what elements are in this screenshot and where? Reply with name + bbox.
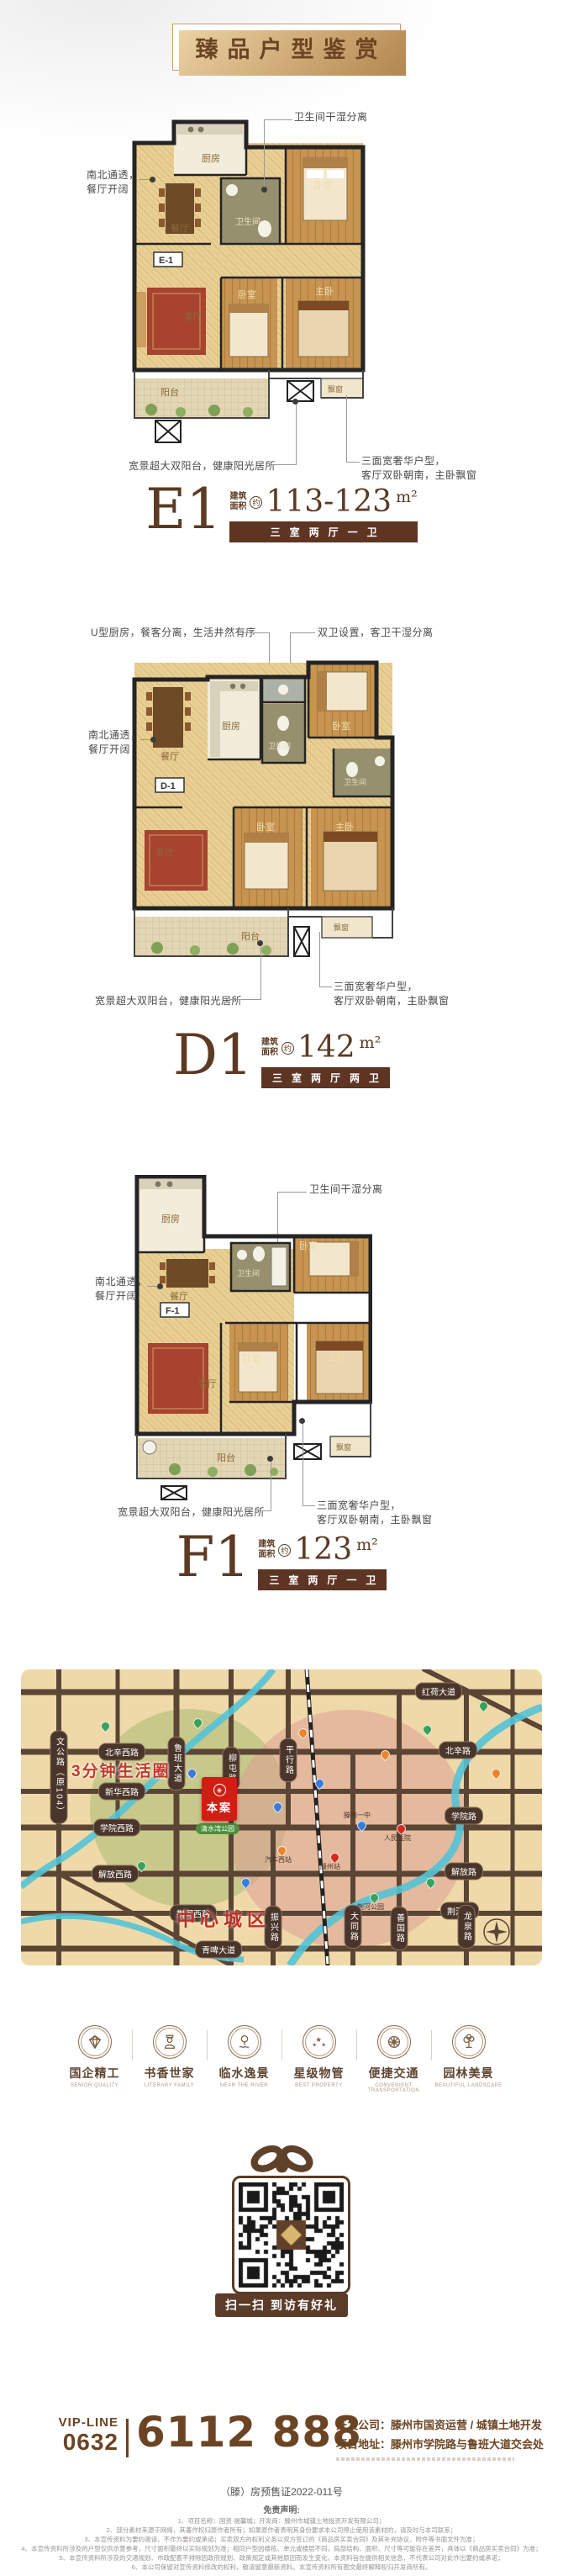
area-unit: m² bbox=[356, 1536, 378, 1554]
plan-letter-e1: E1 bbox=[145, 484, 221, 535]
feature-row: 国企精工 SENIOR QUALITY 书香世家 LITERARY FAMILY… bbox=[0, 2025, 563, 2093]
room-label-bedroom-mid: 卧室 bbox=[238, 288, 256, 300]
area-unit: m² bbox=[396, 488, 418, 506]
note-f1-bottom-right: 三面宽奢华户型， 客厅双卧朝南，主卧飘窗 bbox=[317, 1499, 433, 1527]
leader-line bbox=[271, 464, 297, 465]
room-label-living: 客厅 bbox=[198, 1378, 217, 1389]
center-zone-label: 中心城区 bbox=[176, 1905, 271, 1932]
room-label-balcony: 阳台 bbox=[217, 1452, 235, 1463]
note-e1-bottom-left: 宽景超大双阳台，健康阳光居所 bbox=[129, 459, 276, 473]
wheel-icon bbox=[377, 2025, 411, 2059]
leader-line bbox=[244, 632, 269, 633]
room-label-dining: 餐厅 bbox=[160, 750, 179, 762]
road-label: 解放西路 bbox=[92, 1865, 139, 1883]
room-label-bath-guest: 卫生间 bbox=[268, 741, 291, 750]
feature-sub: CONVENIENT TRANSPORTATION bbox=[357, 2083, 431, 2093]
park-label: 清水湾公园 bbox=[196, 1823, 239, 1834]
road-label: 新华西路 bbox=[98, 1783, 145, 1801]
vip-line-block: VIP-LINE 0632 bbox=[46, 2415, 118, 2455]
note-e1-bottom-right: 三面宽奢华户型， 客厅双卧朝南，主卧飘窗 bbox=[361, 454, 477, 483]
disclaimer-list: 1、项目名称：国资·晟馨城；开发商：滕州市城镇土地投资开发有限公司； 2、部分素… bbox=[0, 2516, 563, 2572]
leader-dot bbox=[150, 737, 156, 743]
room-label-kitchen: 厨房 bbox=[222, 721, 240, 732]
stars-icon: ★★★ bbox=[303, 2025, 336, 2059]
floorplan-e1: 厨房 卫生间 卧室 餐厅 客厅 卧室 主卧 阳台 飘窗 E-1 bbox=[130, 119, 366, 447]
compass-icon bbox=[484, 1919, 509, 1944]
poi-label: 滕州站 bbox=[320, 1862, 340, 1871]
feature-item: 园林美景 BEAUTIFUL LANDSCAPE bbox=[432, 2025, 506, 2088]
plan-code-d1: D-1 bbox=[160, 781, 176, 791]
feature-item: 临水逸景 NEAR THE RIVER bbox=[208, 2025, 281, 2088]
leader-line bbox=[265, 119, 292, 120]
room-label-kitchen: 厨房 bbox=[161, 1214, 180, 1225]
life-circle-label: 3分钟生活圈 bbox=[71, 1759, 171, 1781]
note-f1-bottom-left: 宽景超大双阳台，健康阳光居所 bbox=[118, 1505, 265, 1520]
feature-item: 国企精工 SENIOR QUALITY bbox=[58, 2025, 132, 2088]
location-map: 红荷大道 北辛西路 北辛路 新华西路 学院西路 学院路 解放西路 解放路 荆河西… bbox=[21, 1669, 542, 1965]
flyer-page: 臻品户型鉴赏 bbox=[0, 0, 563, 2576]
room-label-living: 客厅 bbox=[155, 846, 174, 858]
svg-text:★: ★ bbox=[312, 2043, 317, 2049]
plan-title-d1: D1 建筑 面积 约 142 m² 三室两厅两卫 bbox=[0, 1030, 563, 1088]
note-f1-left: 南北通透， 餐厅开阔 bbox=[95, 1275, 148, 1304]
qr-code-canvas bbox=[239, 2182, 344, 2288]
poi-label: 滕州一中 bbox=[344, 1811, 371, 1820]
title-banner: 臻品户型鉴赏 bbox=[172, 24, 401, 71]
project-marker-label: 本案 bbox=[207, 1799, 232, 1815]
plan-letter-d1: D1 bbox=[173, 1030, 253, 1081]
disclaimer-title: 免责声明: bbox=[0, 2503, 563, 2515]
waterside-tree-icon bbox=[228, 2025, 261, 2059]
room-label-dining: 餐厅 bbox=[171, 222, 189, 234]
approx-circle: 约 bbox=[250, 496, 262, 509]
qr-caption: 扫一扫 到访有好礼 bbox=[215, 2293, 348, 2317]
poi-label: 汽车西站 bbox=[265, 1855, 292, 1865]
area-label: 建筑 面积 bbox=[261, 1038, 278, 1058]
spec-bar-d1: 三室两厅两卫 bbox=[261, 1067, 390, 1088]
note-d1-top-left: U型厨房，餐客分离，生活井然有序 bbox=[91, 626, 256, 640]
road-label: 学院路 bbox=[445, 1807, 483, 1825]
note-d1-bottom-left: 宽景超大双阳台，健康阳光居所 bbox=[95, 994, 242, 1008]
plan-title-f1: F1 建筑 面积 约 123 m² 三室两厅一卫 bbox=[0, 1532, 563, 1590]
divider bbox=[126, 2419, 129, 2457]
feature-label: 书香世家 bbox=[133, 2065, 207, 2081]
leader-dot bbox=[267, 1456, 273, 1462]
feature-sub: BEAUTIFUL LANDSCAPE bbox=[432, 2083, 506, 2088]
room-label-dining: 餐厅 bbox=[170, 1290, 188, 1302]
area-value: 113-123 bbox=[266, 488, 392, 516]
developer-info: 开发公司：滕州市国资运营 / 城镇土地开发 项目地址：滕州市学院路与鲁班大道交会… bbox=[336, 2415, 544, 2454]
note-d1-left: 南北通透， 餐厅开阔 bbox=[88, 728, 141, 757]
feature-label: 便捷交通 bbox=[357, 2065, 431, 2081]
room-label-bath-master: 卫生间 bbox=[344, 777, 366, 786]
room-label-bedroom-mid: 卧室 bbox=[242, 1352, 260, 1364]
area-code: 0632 bbox=[46, 2430, 118, 2455]
road-label: 学院西路 bbox=[93, 1819, 140, 1837]
disclaimer-line: 5、本宣传资料所涉及的交通规划、市政配套不排除因政府规划、政策规定或其他原因而发… bbox=[0, 2553, 563, 2563]
gift-bow-icon bbox=[242, 2138, 322, 2177]
room-label-master: 主卧 bbox=[315, 286, 334, 297]
road-label: 青啤大道 bbox=[195, 1941, 242, 1959]
feature-label: 国企精工 bbox=[58, 2065, 132, 2081]
leader-line bbox=[264, 119, 265, 190]
project-emblem-icon: ◈ bbox=[213, 1784, 226, 1796]
road-label: 红荷大道 bbox=[415, 1683, 462, 1701]
leader-line bbox=[319, 986, 332, 987]
room-label-balcony: 阳台 bbox=[241, 930, 260, 942]
room-label-bath: 卫生间 bbox=[235, 216, 260, 227]
qr-code bbox=[232, 2176, 350, 2294]
note-e1-left: 南北通透， 餐厅开阔 bbox=[87, 168, 139, 197]
leader-line bbox=[260, 945, 261, 1000]
disclaimer-line: 6、本公司保留对宣传资料修改的权利，敬请留意最新资料。本宣传资料所有图文最终解释… bbox=[0, 2563, 563, 2572]
road-label: 解放路 bbox=[445, 1863, 483, 1880]
feature-item: ★★★ 星级物管 BEST PROPERTY bbox=[282, 2025, 356, 2088]
disclaimer-line: 2、部分素材来源于网络，其著作权归原作者所有；如果原作者表明其身份要求本公司停止… bbox=[0, 2526, 563, 2535]
approx-circle: 约 bbox=[278, 1544, 291, 1557]
area-value: 123 bbox=[294, 1536, 352, 1564]
leader-dot bbox=[257, 940, 263, 946]
disclaimer-line: 4、本宣传资料所涉及的户型仅供示意参考，尺寸面积最终以实际规划为准；相同户型因楼… bbox=[0, 2544, 563, 2553]
presale-permit: （滕）房预售证2022-011号 bbox=[0, 2484, 563, 2499]
leader-line bbox=[319, 932, 320, 987]
road-label: 龙泉路 bbox=[458, 1905, 476, 1949]
leader-line bbox=[229, 999, 260, 1000]
road-label: 文公路（原104） bbox=[50, 1731, 68, 1824]
vip-line-label: VIP-LINE bbox=[46, 2415, 118, 2430]
leader-line bbox=[346, 395, 347, 463]
area-unit: m² bbox=[360, 1034, 381, 1052]
area-label: 建筑 面积 bbox=[258, 1540, 275, 1560]
svg-text:★: ★ bbox=[321, 2043, 326, 2049]
room-label-bedroom-top: 卧室 bbox=[313, 179, 332, 191]
leader-line bbox=[346, 462, 360, 463]
leader-line bbox=[296, 404, 297, 465]
disclaimer-line: 1、项目名称：国资·晟馨城；开发商：滕州市城镇土地投资开发有限公司； bbox=[0, 2516, 563, 2526]
area-label: 建筑 面积 bbox=[229, 492, 246, 512]
room-label-master: 主卧 bbox=[335, 822, 354, 833]
plan-code-e1: E-1 bbox=[159, 256, 173, 266]
road-label: 北辛路 bbox=[439, 1742, 477, 1759]
room-label-balcony: 阳台 bbox=[160, 386, 179, 398]
room-label-living: 客厅 bbox=[184, 310, 203, 322]
plan-letter-f1: F1 bbox=[176, 1532, 250, 1583]
spec-bar-f1: 三室两厅一卫 bbox=[258, 1569, 387, 1590]
address-line: 项目地址：滕州市学院路与鲁班大道交会处 bbox=[336, 2435, 544, 2454]
room-label-bedroom-top: 卧室 bbox=[332, 720, 350, 732]
feature-sub: NEAR THE RIVER bbox=[208, 2083, 281, 2088]
room-label-bay: 飘窗 bbox=[328, 384, 343, 394]
feature-sub: BEST PROPERTY bbox=[282, 2083, 356, 2088]
leader-line bbox=[290, 632, 315, 633]
leader-line bbox=[139, 179, 150, 180]
note-e1-top-right: 卫生间干湿分离 bbox=[294, 110, 368, 124]
leader-dot bbox=[292, 399, 298, 405]
road-label: 平行路 bbox=[280, 1738, 297, 1782]
feature-sub: SENIOR QUALITY bbox=[58, 2083, 132, 2088]
room-label-kitchen: 厨房 bbox=[202, 153, 220, 164]
room-label-master: 主卧 bbox=[328, 1351, 346, 1362]
scholar-icon bbox=[153, 2025, 187, 2059]
note-d1-top-right: 双卫设置，客卫干湿分离 bbox=[318, 626, 434, 640]
room-label-bay: 飘窗 bbox=[334, 923, 349, 932]
leader-dot bbox=[157, 1283, 163, 1289]
floorplan-f1: 厨房 卫生间 卧室 餐厅 客厅 卧室 主卧 阳台 飘窗 F-1 bbox=[133, 1175, 372, 1503]
road-label: 善国路 bbox=[391, 1907, 408, 1950]
poi-label: 人民医院 bbox=[384, 1833, 411, 1843]
disclaimer-line: 3、本宣传资料为要约邀请，不作为要约或承诺；买卖双方的权利义务以双方签订的《商品… bbox=[0, 2535, 563, 2544]
leader-dot bbox=[261, 187, 267, 193]
leader-line bbox=[303, 1505, 315, 1506]
plan-code-f1: F-1 bbox=[166, 1306, 180, 1316]
room-label-bedroom-mid: 卧室 bbox=[256, 821, 275, 833]
note-d1-bottom-right: 三面宽奢华户型， 客厅双卧朝南，主卧飘窗 bbox=[334, 980, 450, 1008]
feature-label: 园林美景 bbox=[432, 2065, 506, 2081]
leader-dot bbox=[299, 1418, 305, 1424]
road-label: 大同路 bbox=[345, 1905, 362, 1949]
diamond-icon bbox=[78, 2025, 112, 2059]
floorplan-d1: 餐厅 厨房 卫生间 卧室 卫生间 客厅 卧室 主卧 阳台 飘窗 D-1 bbox=[132, 652, 395, 959]
project-marker: ◈ 本案 bbox=[202, 1777, 237, 1821]
leader-line bbox=[303, 1423, 303, 1506]
ac-unit-icon bbox=[294, 927, 309, 956]
phone-number: 6112 888 bbox=[136, 2408, 362, 2457]
feature-label: 临水逸景 bbox=[208, 2065, 281, 2081]
room-label-bath: 卫生间 bbox=[237, 1268, 260, 1277]
feature-item: 书香世家 LITERARY FAMILY bbox=[133, 2025, 207, 2088]
room-label-bay: 飘窗 bbox=[336, 1442, 351, 1452]
fine-print-line bbox=[336, 2457, 514, 2461]
leader-dot bbox=[150, 177, 155, 182]
garden-tree-icon bbox=[452, 2025, 486, 2059]
room-label-bedroom-top: 卧室 bbox=[299, 1240, 318, 1251]
leader-line bbox=[271, 1461, 271, 1511]
feature-item: 便捷交通 CONVENIENT TRANSPORTATION bbox=[357, 2025, 431, 2093]
plan-title-e1: E1 建筑 面积 约 113-123 m² 三室两厅一卫 bbox=[0, 484, 563, 542]
feature-label: 星级物管 bbox=[282, 2065, 356, 2081]
page-title: 臻品户型鉴赏 bbox=[187, 31, 387, 64]
developer-line: 开发公司：滕州市国资运营 / 城镇土地开发 bbox=[336, 2415, 544, 2435]
area-value: 142 bbox=[297, 1034, 355, 1062]
approx-circle: 约 bbox=[281, 1042, 294, 1055]
spec-bar-e1: 三室两厅一卫 bbox=[229, 521, 417, 542]
feature-sub: LITERARY FAMILY bbox=[133, 2083, 207, 2088]
